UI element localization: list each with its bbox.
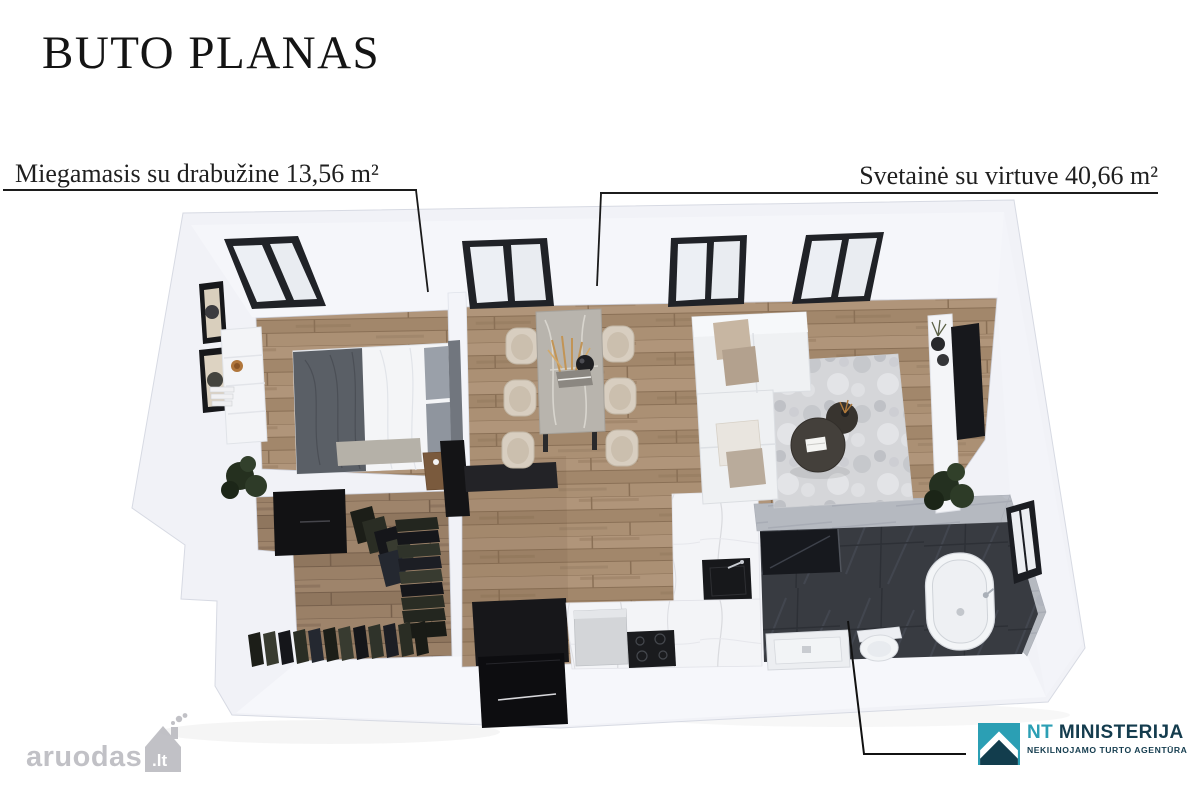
- shower-tray: [766, 630, 850, 670]
- watermark-tld: .lt: [152, 751, 167, 770]
- bathtub: [924, 552, 995, 651]
- floor-plan-rendering: [0, 0, 1200, 799]
- mountain-roof-icon: [978, 723, 1020, 765]
- page-title: BUTO PLANAS: [42, 26, 380, 80]
- watermark-brand-text: aruodas: [26, 743, 142, 774]
- agency-name: NT MINISTERIJA: [1027, 723, 1187, 743]
- agency-logo: NT MINISTERIJA NEKILNOJAMO TURTO AGENTŪR…: [978, 723, 1187, 765]
- agency-name-rest: MINISTERIJA: [1059, 722, 1184, 743]
- agency-text: NT MINISTERIJA NEKILNOJAMO TURTO AGENTŪR…: [1027, 723, 1187, 755]
- room-label-bedroom: Miegamasis su drabužine 13,56 m²: [15, 159, 379, 189]
- house-chimney-icon: .lt: [142, 712, 190, 774]
- dining-table: [536, 309, 605, 452]
- shelf-books: [210, 387, 234, 406]
- window-dining: [462, 238, 554, 309]
- bedroom-label-underline: [3, 189, 417, 191]
- agency-name-accent: NT: [1027, 722, 1053, 743]
- floor-plan-page: BUTO PLANAS Miegamasis su drabužine 13,5…: [0, 0, 1200, 799]
- watermark-aruodas: aruodas .lt: [26, 712, 190, 774]
- window-living-2: [792, 232, 884, 304]
- living-label-underline: [600, 192, 1158, 194]
- tv: [951, 323, 985, 440]
- wardrobe-cabinet: [273, 489, 347, 556]
- window-living-1: [668, 235, 747, 307]
- cooktop: [627, 630, 676, 668]
- agency-tagline: NEKILNOJAMO TURTO AGENTŪRA: [1027, 745, 1187, 755]
- fridge: [574, 609, 628, 666]
- dresser: [221, 327, 267, 444]
- shower: [760, 529, 841, 575]
- room-label-living: Svetainė su virtuve 40,66 m²: [600, 161, 1158, 191]
- entrance-door: [478, 653, 568, 728]
- kitchen-sink: [702, 558, 752, 603]
